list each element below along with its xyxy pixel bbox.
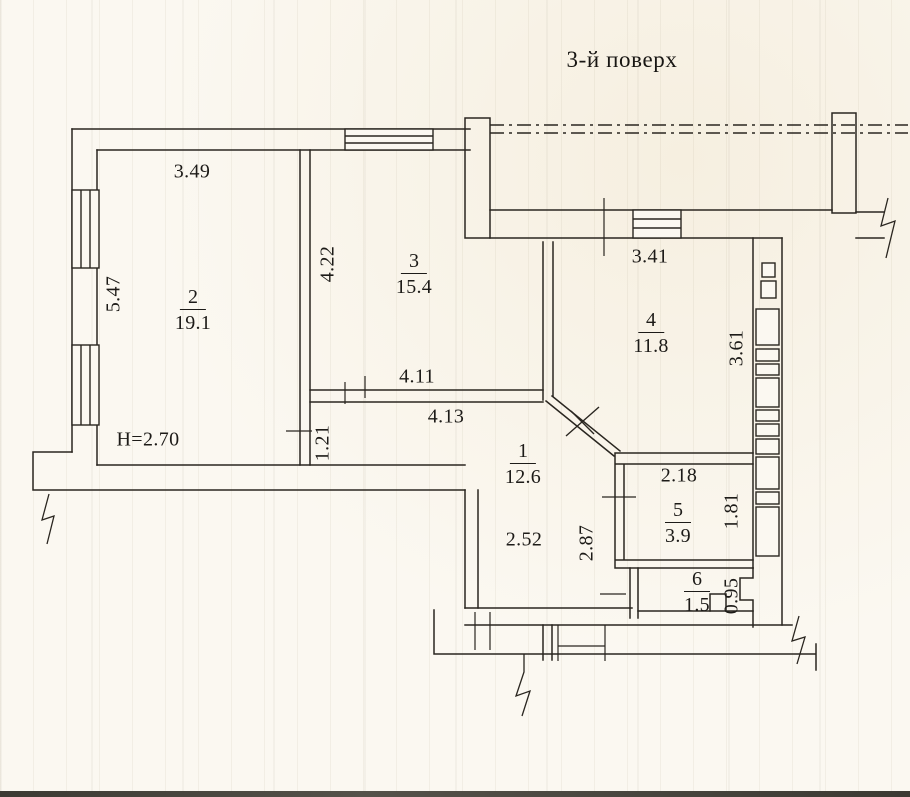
room-number: 1: [510, 440, 536, 464]
floor-plan-drawing: [0, 0, 910, 797]
dim-niche-width: 0.95: [721, 578, 744, 615]
room-label-5: 5 3.9: [665, 499, 691, 547]
balcony-railing: [490, 125, 908, 133]
dim-room3-depth: 4.22: [317, 246, 340, 283]
dim-room5-width: 2.18: [661, 465, 698, 488]
window-room2-left-upper: [72, 190, 99, 268]
room-number: 3: [401, 250, 427, 274]
room-area: 19.1: [175, 310, 211, 334]
room-area: 3.9: [665, 523, 691, 547]
dim-room5-depth: 1.81: [721, 493, 744, 530]
dim-hall-left-jog: 1.21: [312, 425, 335, 462]
window-room3-top: [345, 129, 433, 150]
dim-hall-width: 2.52: [506, 529, 543, 552]
dim-hall-top-upper: 4.11: [399, 366, 435, 389]
windows: [72, 129, 681, 425]
room-label-4: 4 11.8: [633, 309, 668, 357]
room-number: 2: [180, 286, 206, 310]
window-room4-top: [633, 210, 681, 238]
room-label-6: 6 1.5: [684, 568, 710, 616]
room-area: 15.4: [396, 274, 432, 298]
room-label-3: 3 15.4: [396, 250, 432, 298]
page-title: 3-й поверх: [567, 47, 678, 73]
window-room2-left-lower: [72, 345, 99, 425]
vent-shaft-blocks: [756, 263, 779, 556]
scanned-floor-plan-page: 3-й поверх 1 12.6 2 19.1 3 15.4 4 11.8 5…: [0, 0, 910, 797]
dim-room2-depth: 5.47: [103, 276, 126, 313]
room-number: 6: [684, 568, 710, 592]
room-number: 5: [665, 499, 691, 523]
dim-room2-width: 3.49: [174, 161, 211, 184]
room-area: 1.5: [684, 592, 710, 616]
scan-edge-shadow: [0, 791, 910, 797]
room-number: 4: [638, 309, 664, 333]
room-label-1: 1 12.6: [505, 440, 541, 488]
dim-shaft-height: 3.61: [726, 330, 749, 367]
dim-hall-top-lower: 4.13: [428, 406, 465, 429]
room-label-2: 2 19.1: [175, 286, 211, 334]
room-area: 12.6: [505, 464, 541, 488]
dim-room4-width: 3.41: [632, 246, 669, 269]
dim-hall-depth: 2.87: [576, 525, 599, 562]
ceiling-height-note: H=2.70: [116, 429, 179, 452]
room-area: 11.8: [633, 333, 668, 357]
